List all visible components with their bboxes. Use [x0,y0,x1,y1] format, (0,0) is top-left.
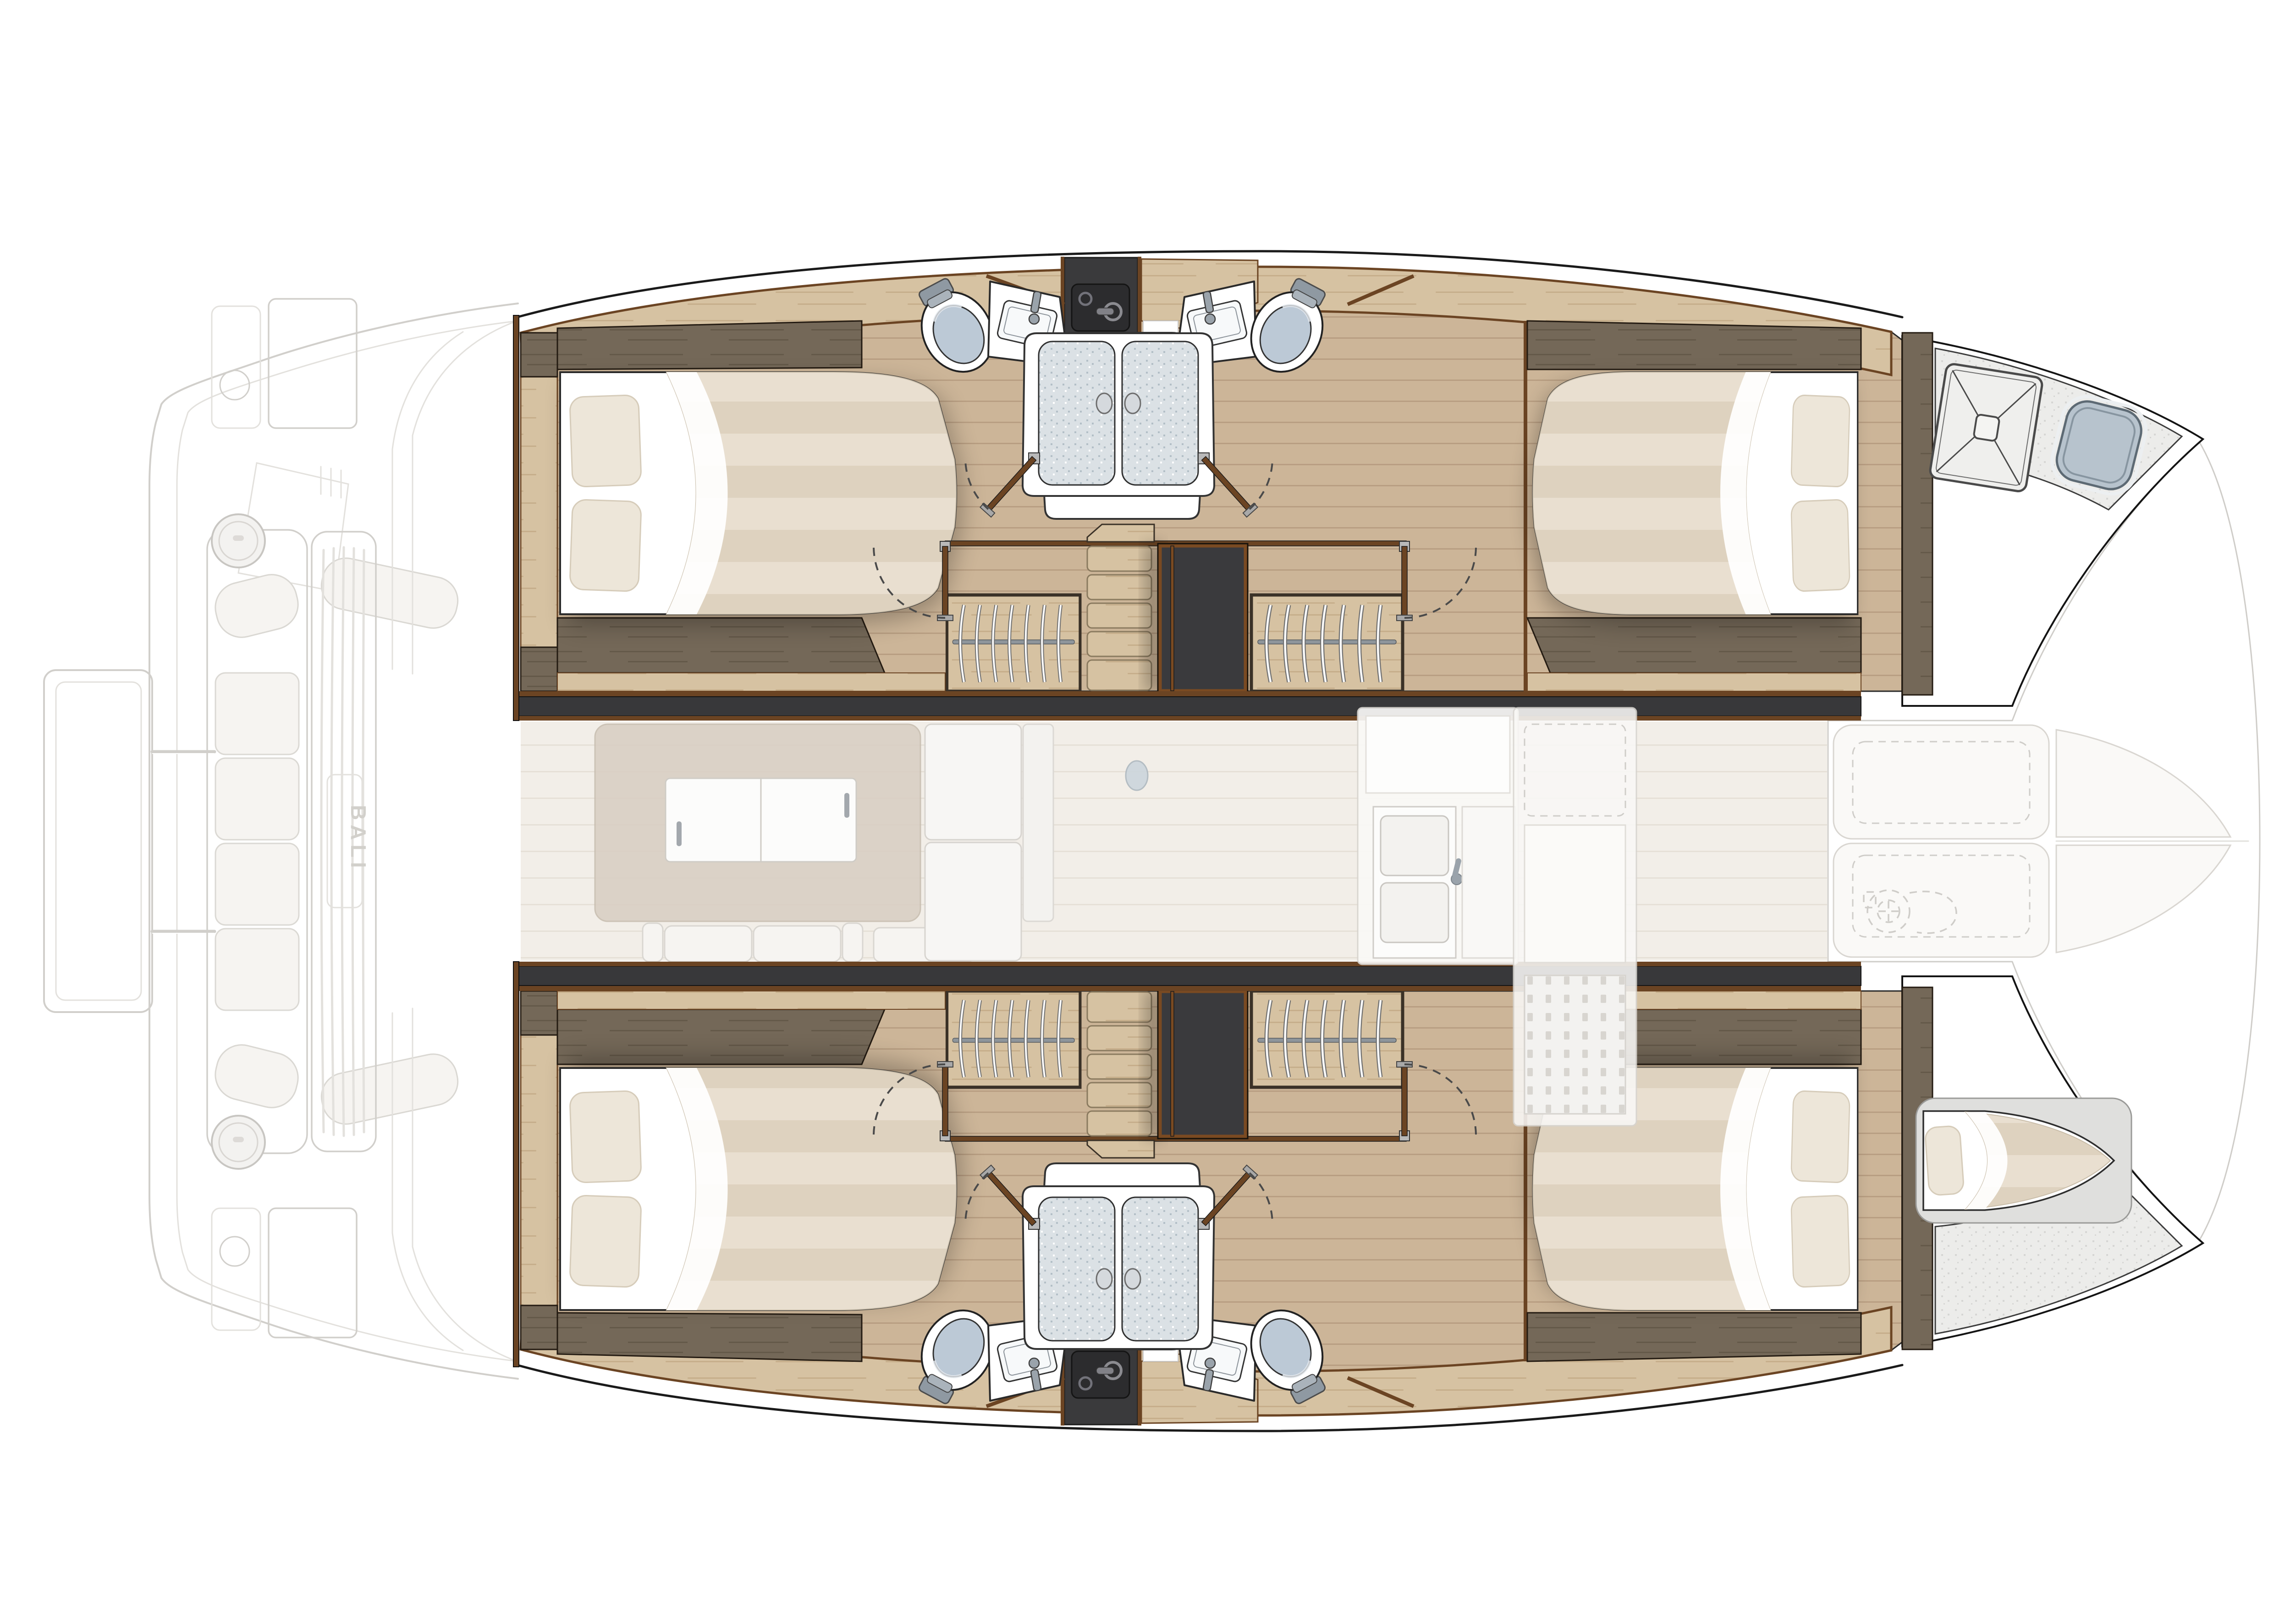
starboard-hull [513,962,1902,1431]
galley-sink-icon [1373,807,1462,958]
skipper-berth-icon [1916,1098,2131,1223]
port-hull [513,251,1902,721]
bow-bulkhead [1902,333,1933,695]
deck-hatch-round-icon [212,514,265,567]
galley-block [595,724,920,921]
sliding-cabinet-icon [666,778,856,862]
pillow-icon [1925,1126,1964,1196]
nav-galley-module [1358,708,1518,964]
table-foot [1126,761,1148,790]
catamaran-floorplan: BALI [0,0,2274,1624]
shower-mat-icon [1525,975,1625,1114]
brand-mark: BALI [347,805,370,872]
day-head-module [1514,708,1636,1126]
hatch-cross-icon [1929,363,2043,492]
deck-hatch-round-icon [212,1116,265,1169]
